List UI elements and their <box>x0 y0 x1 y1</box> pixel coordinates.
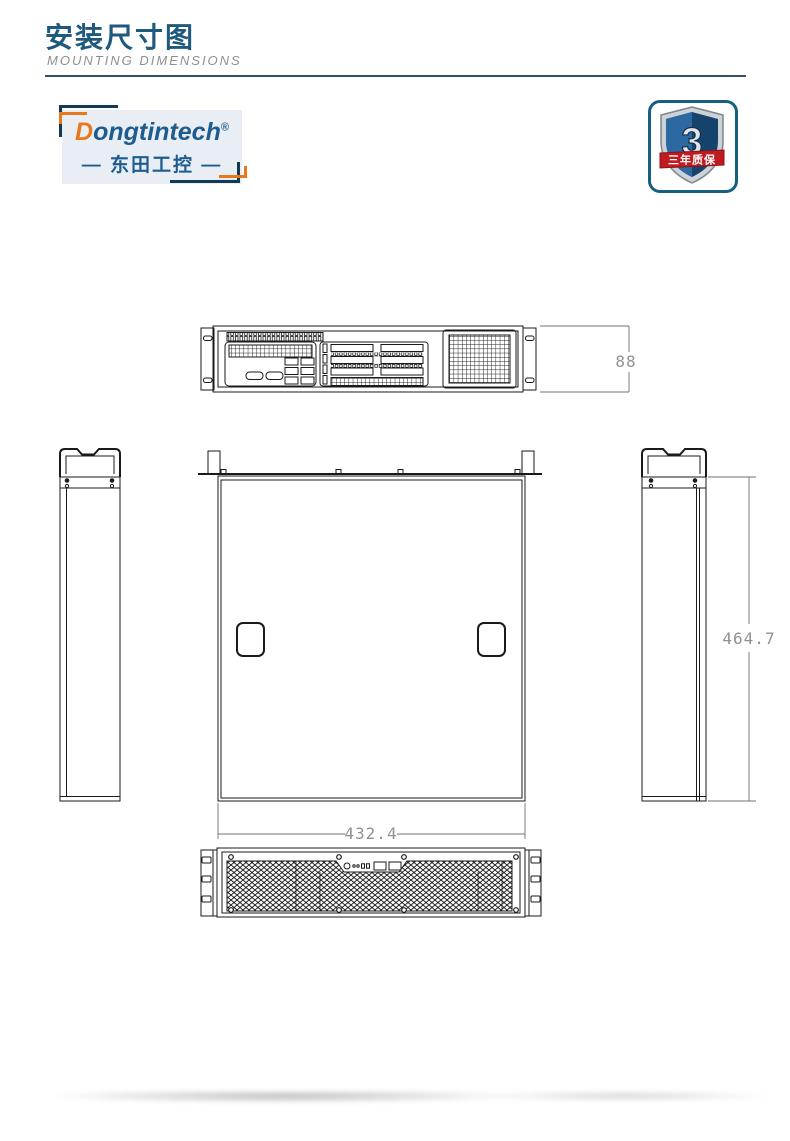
dsub-connector <box>266 372 283 380</box>
dsub-connector <box>246 372 263 380</box>
mounting-dimensions-sheet: 安装尺寸图 MOUNTING DIMENSIONS Dongtintech® —… <box>0 0 790 1141</box>
page-edge-shadow <box>0 1091 790 1111</box>
left-side-view <box>60 449 120 801</box>
handle-bracket <box>60 449 120 477</box>
port-block <box>285 358 314 384</box>
io-panel <box>225 342 316 386</box>
front-controls <box>344 862 401 870</box>
vent-slits <box>227 333 323 342</box>
rack-ear-right <box>523 328 536 390</box>
height-dimension-label: 88 <box>615 352 636 371</box>
thumbscrew-right <box>478 623 505 656</box>
rear-panel-view <box>201 326 536 392</box>
technical-drawings: 88 464.7 <box>0 0 790 1141</box>
depth-dimension-label: 464.7 <box>722 629 775 648</box>
width-dimension-label: 432.4 <box>344 824 397 843</box>
handle-bracket <box>642 449 706 477</box>
depth-dimension: 464.7 <box>708 477 776 801</box>
usb-port <box>389 862 401 870</box>
top-cover-inner <box>221 480 522 798</box>
height-dimension: 88 <box>540 326 637 392</box>
rack-ear-left <box>201 850 217 916</box>
rack-ear-right <box>525 850 541 916</box>
side-body <box>60 488 120 801</box>
usb-port <box>374 862 386 870</box>
thumbscrew-left <box>237 623 264 656</box>
rack-ear-left <box>201 328 214 390</box>
right-side-view <box>642 449 706 801</box>
power-button <box>344 863 350 869</box>
width-dimension: 432.4 <box>218 803 525 843</box>
top-view <box>198 451 542 801</box>
fan-grille <box>443 330 516 388</box>
front-panel-view <box>201 848 541 917</box>
ear-tab-right <box>522 451 534 474</box>
ear-tab-left <box>208 451 220 474</box>
expansion-slot-area <box>320 342 428 386</box>
